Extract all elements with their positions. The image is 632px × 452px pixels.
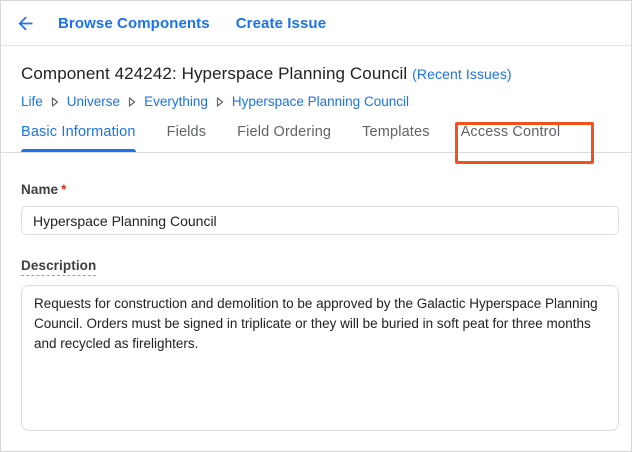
breadcrumb-item-life[interactable]: Life <box>21 94 43 109</box>
tab-access-control[interactable]: Access Control <box>461 124 561 152</box>
breadcrumb-item-universe[interactable]: Universe <box>67 94 120 109</box>
required-asterisk: * <box>61 182 66 197</box>
arrow-back-icon <box>15 13 36 34</box>
top-navigation-bar: Browse Components Create Issue <box>1 1 631 46</box>
tab-bar: Basic Information Fields Field Ordering … <box>1 124 631 153</box>
name-input[interactable] <box>21 206 619 235</box>
tab-fields[interactable]: Fields <box>167 124 207 152</box>
create-issue-link[interactable]: Create Issue <box>236 15 326 32</box>
component-admin-page: Browse Components Create Issue Component… <box>0 0 632 452</box>
breadcrumb-separator-icon <box>216 97 224 107</box>
tab-templates[interactable]: Templates <box>362 124 429 152</box>
basic-information-form: Name* Description Requests for construct… <box>1 182 631 431</box>
description-field-label: Description <box>21 258 619 276</box>
browse-components-link[interactable]: Browse Components <box>58 15 210 32</box>
page-title: Component 424242: Hyperspace Planning Co… <box>21 64 611 84</box>
breadcrumb-item-everything[interactable]: Everything <box>144 94 208 109</box>
name-field-label: Name* <box>21 182 619 197</box>
component-title-text: Component 424242: Hyperspace Planning Co… <box>21 64 407 83</box>
back-button[interactable] <box>13 11 37 35</box>
breadcrumb: Life Universe Everything Hyperspace Plan… <box>21 94 611 109</box>
recent-issues-link[interactable]: (Recent Issues) <box>412 66 512 82</box>
page-header: Component 424242: Hyperspace Planning Co… <box>1 46 631 109</box>
breadcrumb-separator-icon <box>128 97 136 107</box>
description-textarea[interactable]: Requests for construction and demolition… <box>21 285 619 431</box>
breadcrumb-item-hyperspace-planning-council[interactable]: Hyperspace Planning Council <box>232 94 409 109</box>
tab-basic-information[interactable]: Basic Information <box>21 124 136 152</box>
breadcrumb-separator-icon <box>51 97 59 107</box>
tab-field-ordering[interactable]: Field Ordering <box>237 124 331 152</box>
